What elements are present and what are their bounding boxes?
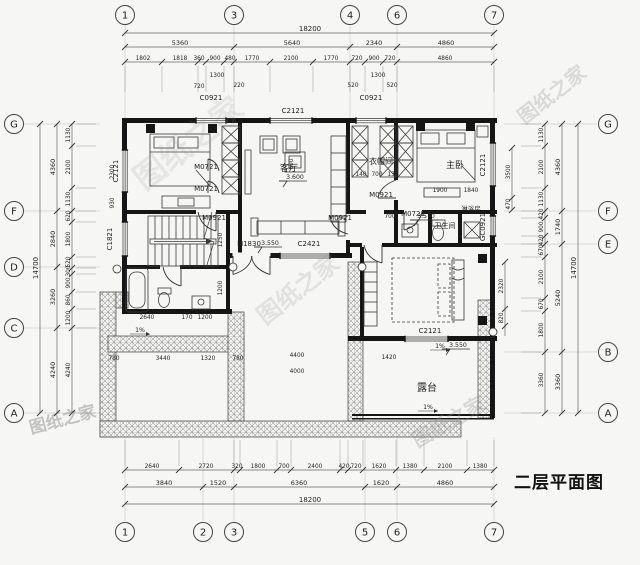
dimension-value: 820 [499,312,505,323]
inline-dimension: 1300 [371,73,386,79]
dimension-value: 5640 [284,39,301,47]
dimension-value: 1770 [324,56,339,62]
grid-bubble-label: F [605,207,611,218]
grid-bubble-label: G [10,120,18,131]
grid-bubble-label: 4 [347,11,353,22]
grid-bubble-label: F [11,207,17,218]
grid-bubble-label: A [605,409,612,420]
window-c2121-left [122,150,128,192]
elevation-value: 3.570 [417,213,435,220]
dimension-value: 4240 [66,362,72,377]
dimension-value: 860 [66,294,72,305]
dimension-value: 420 [338,464,349,470]
opening-code-label: M0721 [194,185,218,193]
dimension-value: 3260 [49,289,57,306]
dimension-value: 2400 [308,464,323,470]
dimension-value: 5240 [554,290,562,307]
inline-dimension: 520 [386,83,397,89]
dimension-value: 1620 [373,479,390,487]
dimension-value: 2100 [539,159,545,174]
dimension-value: 2100 [284,56,299,62]
dimension-value: 1620 [372,464,387,470]
dimension-value: 720 [351,56,362,62]
dimension-value: 4360 [49,159,57,176]
dimension-value: 2640 [145,464,160,470]
grid-bubble-label: 6 [394,528,400,539]
grid-bubble-label: 7 [491,528,497,539]
opening-code-label: C2121 [419,327,442,335]
inline-dimension: 720 [193,84,204,90]
dimension-value: 5360 [172,39,189,47]
window-c0921-top-right [356,117,386,123]
dimension-value: 2720 [199,464,214,470]
dimension-value: 360 [193,56,204,62]
inline-dimension: 135 [387,172,398,178]
dimension-value: 670 [539,244,545,255]
slope-label: 1% [423,404,433,411]
inline-dimension: 170 [181,315,192,321]
room-label: 衣帽间 [369,156,393,166]
dimension-value: 900 [66,277,72,288]
grid-bubble-label: 5 [362,528,368,539]
dimension-value: 14700 [570,257,578,279]
inline-dimension: 3440 [156,356,171,362]
grid-bubble-label: G [604,120,612,131]
opening-code-label: C1821 [106,228,114,251]
dimension-value: 900 [368,56,379,62]
opening-code-label: M0921 [369,191,393,199]
dimension-value: 1130 [66,127,72,142]
dimension-value: 420 [539,208,545,219]
grid-bubble-label: 7 [491,11,497,22]
inline-dimension: 780 [108,356,119,362]
room-label: 露台 [417,381,437,394]
inline-dimension: 1200 [218,280,224,295]
dimension-value: 720 [384,56,395,62]
dimension-value: 2100 [438,464,453,470]
elevation-value: 3.550 [449,342,467,349]
grid-bubble-label: 1 [122,11,128,22]
dimension-value: 14700 [32,257,40,279]
inline-dimension: 700 [371,172,382,178]
dimension-value: 4860 [437,479,454,487]
window-c2121-top-center [270,117,312,123]
inline-dimension: 930 [110,197,116,208]
inline-dimension: 1250 [218,232,224,247]
dimension-value: 1200 [66,310,72,325]
dimension-value: 1130 [66,191,72,206]
grid-bubble-label: 6 [394,11,400,22]
room-label: 客厅 [280,162,298,174]
dimension-value: 1818 [173,56,188,62]
grid-bubble-label: C [11,324,18,335]
floor-plan-sheet: 图纸之家图纸之家图纸之家图纸之家图纸之家13467123567GFDCAGFEB… [0,0,640,565]
dimension-value: 1800 [66,231,72,246]
grid-bubble-label: 3 [231,528,237,539]
dimension-value: 18200 [299,25,321,33]
dimension-value: 6360 [291,479,308,487]
dimension-value: 4360 [554,159,562,176]
dimension-value: 320 [231,464,242,470]
elevation-value: 3.600 [286,174,304,181]
dimension-value: 1520 [210,479,227,487]
window-gc0921-right [490,216,496,236]
dimension-value: 3360 [539,372,545,387]
opening-code-label: C0921 [360,94,383,102]
inline-dimension: 780 [232,356,243,362]
inline-dimension: 140 [355,172,366,178]
dimension-value: 420 [539,234,545,245]
dimension-value: 1130 [539,127,545,142]
dimension-value: 1740 [554,219,562,236]
inline-dimension: 1900 [433,188,448,194]
window-c2121-bedroom-south [405,336,448,342]
opening-code-label: C2121 [112,160,120,183]
opening-code-label: M0921 [202,214,226,222]
inline-dimension: 220 [233,83,244,89]
dimension-value: 1800 [251,464,266,470]
opening-code-label: C0921 [200,94,223,102]
dimension-value: 620 [66,210,72,221]
elevation-value: 3.550 [261,240,279,247]
dimension-value: 3360 [554,374,562,391]
inline-dimension: 1420 [382,355,397,361]
opening-code-label: C2121 [282,107,305,115]
window-c1821-left [122,222,128,256]
inline-dimension: 1840 [464,188,479,194]
inline-dimension: 700 [384,214,395,220]
room-label: 卫生间 [435,221,456,230]
dimension-value: 1130 [539,191,545,206]
slope-label: 1% [135,327,145,334]
dimension-value: 18200 [299,496,321,504]
dimension-value: 1802 [136,56,151,62]
room-label: 主卧 [446,159,464,171]
opening-code-label: M0921 [328,214,352,222]
dimension-value: 2100 [66,159,72,174]
dimension-value: 470 [506,198,512,209]
grid-bubble-label: 1 [122,528,128,539]
dimension-value: 3500 [506,164,512,179]
dimension-value: 900 [209,56,220,62]
inline-dimension: 2640 [140,315,155,321]
grid-bubble-label: E [605,240,611,251]
dimension-value: 3840 [156,479,173,487]
slope-label: 1% [435,343,445,350]
inline-dimension: 4000 [290,369,305,375]
dimension-value: 300 [66,265,72,276]
inline-dimension: 4400 [290,353,305,359]
inline-dimension: 1320 [201,356,216,362]
dimension-value: 1770 [245,56,260,62]
dimension-value: 4860 [438,56,453,62]
opening-code-label: C2421 [298,240,321,248]
dimension-value: 2340 [366,39,383,47]
dimension-value: 700 [278,464,289,470]
grid-bubble-label: 2 [200,528,206,539]
dimension-value: 1380 [473,464,488,470]
inline-dimension: 1200 [198,315,213,321]
inline-dimension: 1300 [210,73,225,79]
grid-bubble-label: 3 [231,11,237,22]
dimension-value: 900 [539,221,545,232]
window-c2121-right [490,143,496,186]
opening-code-label: GC0921 [479,213,487,241]
dimension-value: 670 [539,298,545,309]
drawing-title: 二层平面图 [514,468,634,493]
opening-code-label: M0721 [194,163,218,171]
dimension-value: 4860 [438,39,455,47]
dimension-value: 1800 [539,322,545,337]
grid-bubble-label: B [605,348,612,359]
grid-bubble-label: D [10,263,18,274]
dimension-value: 720 [350,464,361,470]
dimension-value: 480 [224,56,235,62]
dimension-value: 2320 [499,278,505,293]
dimension-value: 4240 [49,362,57,379]
room-label: 淋浴房 [461,204,481,213]
dimension-value: 2840 [49,231,57,248]
dimension-value: 1380 [403,464,418,470]
opening-code-label: C2121 [479,154,487,177]
inline-dimension: 520 [347,83,358,89]
grid-bubble-label: A [11,409,18,420]
dimension-value: 2100 [539,269,545,284]
